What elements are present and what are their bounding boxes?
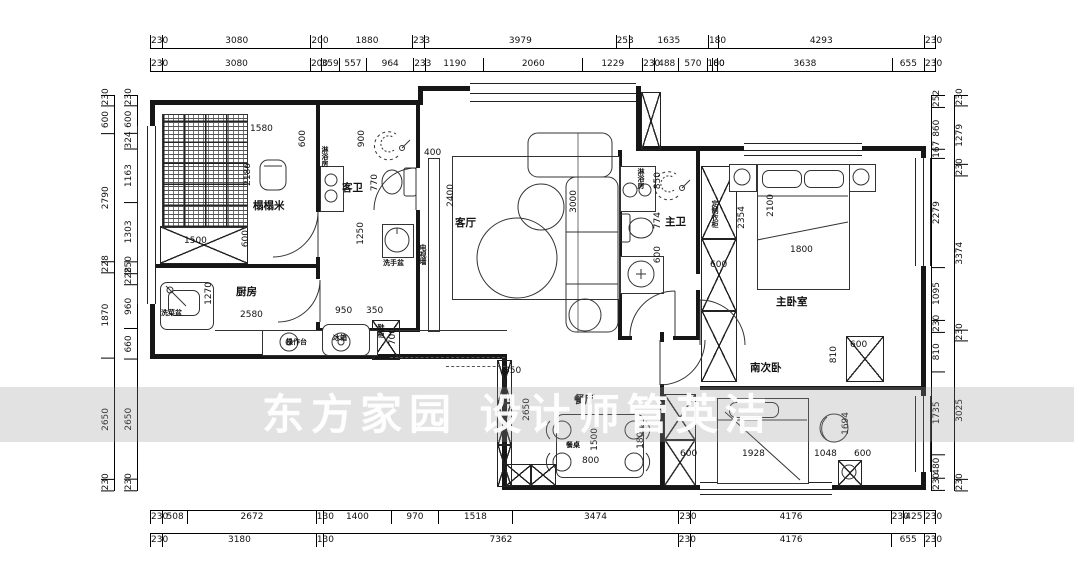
- dim-value: 233: [412, 35, 424, 48]
- dim-value: 2400: [446, 184, 456, 207]
- room-label-kitchen: 厨房: [236, 284, 257, 299]
- wall: [696, 290, 700, 340]
- dim-value: 655: [892, 58, 924, 71]
- dim-value: 2580: [240, 310, 263, 320]
- dim-value: 1800: [790, 245, 813, 255]
- dim-value: 600: [101, 106, 114, 134]
- dim-value: 230: [101, 95, 114, 106]
- dim-value: 570: [678, 58, 706, 71]
- dim-value: 230: [924, 35, 936, 48]
- dim-value: 1580: [250, 124, 273, 134]
- nightstand: [848, 164, 876, 192]
- door-arc-guest-bath: [374, 168, 416, 210]
- dim-value: 600: [124, 106, 137, 134]
- window: [915, 158, 931, 266]
- dim-value: 350: [504, 366, 521, 376]
- pillow: [804, 170, 844, 188]
- dim-value: 180: [708, 35, 718, 48]
- dim-value: 230: [150, 511, 162, 524]
- dim-value: 230: [932, 479, 945, 491]
- wall: [416, 210, 420, 332]
- dim-value: 960: [124, 285, 137, 329]
- wall: [618, 336, 632, 340]
- dim-value: 810: [829, 346, 839, 363]
- dim-value: 230: [955, 330, 968, 341]
- dashed-line: [390, 357, 505, 358]
- dim-value: 253: [616, 35, 629, 48]
- dim-value: 655: [891, 534, 923, 547]
- watermark-band: 东方家园 设计师管英洁: [0, 387, 1074, 442]
- dim-value: 230: [955, 95, 968, 106]
- dim-value: 1270: [204, 282, 214, 305]
- dim-value: 1279: [955, 106, 968, 165]
- dim-value: 230: [101, 480, 114, 491]
- counter-label: 操作台: [286, 337, 307, 347]
- dim-value: 3374: [955, 177, 968, 331]
- room-label-master-bath: 主卫: [665, 214, 686, 229]
- dim-value: 600: [710, 260, 727, 270]
- dim-value: 600: [850, 340, 867, 350]
- dim-value: 425: [903, 511, 924, 524]
- dim-value: 1635: [629, 35, 708, 48]
- dim-value: 2100: [766, 194, 776, 217]
- wardrobe-hatch: [701, 238, 737, 312]
- tatami-mat: [162, 114, 248, 228]
- dim-value: 770: [370, 174, 380, 191]
- toilet-master: [620, 214, 653, 242]
- dim-value: 1095: [932, 268, 945, 321]
- door-arc-south-bedroom: [660, 340, 705, 385]
- window: [470, 83, 636, 102]
- nightstand: [729, 164, 757, 192]
- dim-value: 350: [366, 306, 383, 316]
- dim-value: 600: [298, 130, 308, 147]
- dim-value: 230: [924, 534, 936, 547]
- dim-value: 3080: [162, 58, 310, 71]
- dim-value: 3474: [512, 511, 679, 524]
- dim-value: 230: [124, 480, 137, 491]
- dim-value: 3979: [424, 35, 615, 48]
- dim-value: 850: [653, 172, 663, 189]
- pipe-shaft-hatch: [641, 92, 661, 150]
- tv-cabinet: [428, 158, 440, 332]
- dim-value: 900: [357, 130, 367, 147]
- dim-value: 2279: [932, 159, 945, 268]
- dim-value: 1870: [101, 273, 114, 359]
- dim-value: 3638: [717, 58, 892, 71]
- sill-hatch: [506, 464, 532, 486]
- dim-value: 233: [413, 58, 425, 71]
- dim-value: 230: [642, 58, 654, 71]
- dim-value: 130: [316, 534, 323, 547]
- dim-value: 600: [680, 449, 697, 459]
- dim-value: 230: [924, 511, 936, 524]
- dim-value: 130: [316, 511, 323, 524]
- wall: [673, 336, 700, 340]
- dim-value: 1880: [321, 35, 412, 48]
- dim-value: 2060: [483, 58, 582, 71]
- dim-value: 1163: [124, 150, 137, 203]
- dim-value: 1048: [814, 449, 837, 459]
- tatami-chair: [260, 160, 286, 190]
- fridge-label: 冰箱: [333, 333, 347, 343]
- dim-value: 970: [391, 511, 438, 524]
- dim-value: 600: [653, 246, 663, 263]
- hand-basin-label: 洗手盆: [383, 258, 404, 268]
- wardrobe-label: 定制衣柜: [710, 200, 720, 228]
- dim-chain-top-outer: 23030802001880233397925316351804293230: [150, 35, 936, 49]
- dim-value: 3180: [162, 534, 316, 547]
- dim-value: 230: [124, 95, 137, 106]
- watermark-text: 东方家园 设计师管英洁: [0, 387, 1074, 442]
- dim-value: 508: [162, 511, 187, 524]
- dim-value: 200: [310, 58, 321, 71]
- dim-value: 230: [150, 35, 162, 48]
- door-arc-kitchen: [278, 280, 320, 322]
- wall: [416, 100, 420, 168]
- shower-room-label: 淋浴房: [320, 146, 330, 167]
- dim-value: 359: [321, 58, 339, 71]
- room-label-south-bedroom: 南次卧: [750, 360, 782, 375]
- door-arc-master-bath: [630, 291, 675, 336]
- dim-value: 200: [310, 35, 321, 48]
- dim-value: 1928: [742, 449, 765, 459]
- dashed-line: [446, 366, 506, 367]
- dim-value: 4293: [718, 35, 924, 48]
- balcony-window: [137, 126, 156, 304]
- dim-value: 230: [150, 534, 162, 547]
- dim-value: 230: [955, 165, 968, 176]
- floorplan-canvas: 23030802001880233397925316351804293230 2…: [0, 0, 1074, 576]
- corner-cabinet-hatch: [838, 460, 862, 486]
- wall: [696, 150, 700, 274]
- door-arc-tatami: [273, 212, 318, 257]
- dim-value: 4176: [690, 511, 890, 524]
- dim-value: 660: [124, 329, 137, 360]
- pillow: [762, 170, 802, 188]
- dim-value: 1500: [184, 236, 207, 246]
- dim-value: 230: [932, 321, 945, 333]
- guest-bath-cabinet: [320, 166, 344, 212]
- dim-value: 3080: [162, 35, 310, 48]
- dim-value: 1518: [438, 511, 511, 524]
- sill-hatch: [530, 464, 556, 486]
- dim-value: 700: [388, 328, 398, 345]
- wardrobe-hatch: [701, 310, 737, 382]
- wall: [660, 332, 664, 342]
- room-label-living: 客厅: [455, 215, 476, 230]
- dim-value: 167: [932, 150, 945, 159]
- south-wardrobe-hatch: [664, 439, 696, 486]
- dim-chain-bottom-inner: 2305082672130140097015183474230417623042…: [150, 510, 936, 524]
- dim-value: 400: [424, 148, 441, 158]
- dim-value: 1229: [582, 58, 642, 71]
- guest-basin-cabinet: [382, 224, 414, 258]
- dim-chain-bottom-outer: 230318013073622304176655230: [150, 533, 936, 547]
- toilet-guest: [382, 168, 416, 196]
- shower-head-guest: [374, 132, 410, 160]
- dim-value: 800: [582, 456, 599, 466]
- dim-value: 1190: [425, 58, 483, 71]
- wall: [150, 100, 422, 105]
- room-label-tatami: 榻榻米: [253, 198, 285, 213]
- shower-room-label: 淋浴房: [636, 168, 646, 189]
- dim-value: 230: [678, 534, 690, 547]
- room-label-guest-bath: 客卫: [342, 180, 363, 195]
- dim-value: 230: [678, 511, 690, 524]
- dim-value: 810: [932, 333, 945, 372]
- dim-value: 488: [654, 58, 678, 71]
- dim-value: 1303: [124, 203, 137, 262]
- wall: [316, 257, 320, 279]
- window: [744, 143, 862, 156]
- dim-value: 774: [653, 212, 663, 229]
- living-rug: [452, 156, 620, 300]
- dim-value: 252: [932, 95, 945, 108]
- tv-wall-label: 电视墙: [418, 244, 428, 265]
- dim-value: 950: [335, 306, 352, 316]
- room-label-master-bedroom: 主卧室: [776, 294, 808, 309]
- dim-value: 2186: [243, 163, 253, 186]
- dim-value: 230: [955, 480, 968, 491]
- dim-value: 3000: [569, 190, 579, 213]
- dim-value: 964: [366, 58, 413, 71]
- dim-value: 2790: [101, 135, 114, 262]
- dim-value: 4176: [690, 534, 892, 547]
- dim-value: 228: [101, 262, 114, 273]
- wall: [150, 264, 320, 268]
- dim-value: 1250: [356, 222, 366, 245]
- veg-sink-label: 洗菜盆: [161, 308, 182, 318]
- dim-value: 557: [339, 58, 367, 71]
- dim-value: 1400: [323, 511, 391, 524]
- dim-value: 230: [891, 511, 903, 524]
- dim-value: 230: [150, 58, 162, 71]
- dim-value: 7362: [323, 534, 678, 547]
- dim-value: 228: [124, 274, 137, 285]
- dim-value: 2354: [737, 206, 747, 229]
- dim-value: 2672: [187, 511, 316, 524]
- dim-value: 230: [924, 58, 936, 71]
- dim-value: 600: [854, 449, 871, 459]
- dim-chain-top-inner: 2303080200359557964233119020601229230488…: [150, 58, 936, 72]
- dim-value: 600: [241, 230, 251, 247]
- dim-value: 324: [124, 134, 137, 150]
- shoe-cabinet-label: 鞋柜: [376, 324, 386, 338]
